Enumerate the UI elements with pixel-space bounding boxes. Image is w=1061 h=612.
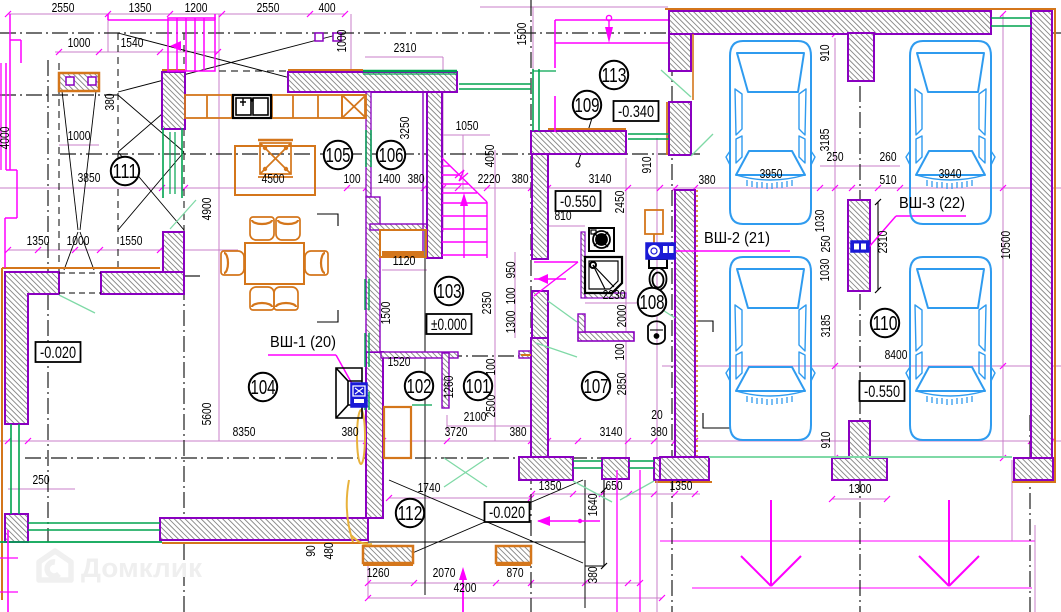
svg-text:104: 104 — [251, 377, 276, 399]
svg-text:950: 950 — [503, 261, 518, 278]
svg-text:1350: 1350 — [539, 478, 562, 493]
svg-text:109: 109 — [575, 95, 600, 117]
svg-text:910: 910 — [818, 431, 833, 448]
svg-text:±0.000: ±0.000 — [431, 315, 467, 334]
svg-text:1400: 1400 — [378, 171, 401, 186]
svg-text:1520: 1520 — [388, 354, 411, 369]
svg-text:1120: 1120 — [393, 253, 416, 268]
svg-text:1500: 1500 — [514, 23, 529, 46]
svg-text:101: 101 — [466, 376, 491, 398]
svg-text:380: 380 — [585, 566, 600, 583]
svg-text:4200: 4200 — [454, 580, 477, 595]
svg-text:1030: 1030 — [812, 210, 827, 233]
svg-text:3940: 3940 — [939, 166, 962, 181]
svg-text:250: 250 — [818, 235, 833, 252]
svg-text:ВШ-1 (20): ВШ-1 (20) — [270, 334, 336, 351]
svg-text:1260: 1260 — [441, 376, 456, 399]
svg-text:10500: 10500 — [998, 231, 1013, 260]
svg-text:3140: 3140 — [589, 171, 612, 186]
svg-text:-0.340: -0.340 — [618, 102, 654, 121]
svg-text:1260: 1260 — [367, 565, 390, 580]
svg-text:ВШ-2 (21): ВШ-2 (21) — [704, 230, 770, 247]
svg-text:103: 103 — [437, 281, 462, 303]
svg-text:Домклик: Домклик — [81, 553, 203, 583]
svg-text:-0.020: -0.020 — [489, 503, 525, 522]
svg-text:3850: 3850 — [78, 170, 101, 185]
svg-text:3140: 3140 — [600, 424, 623, 439]
svg-text:1350: 1350 — [670, 478, 693, 493]
svg-text:4000: 4000 — [0, 127, 12, 150]
svg-text:111: 111 — [113, 161, 138, 183]
svg-text:100: 100 — [612, 343, 627, 360]
svg-text:1050: 1050 — [456, 118, 479, 133]
svg-text:480: 480 — [321, 542, 336, 559]
svg-text:1300: 1300 — [849, 481, 872, 496]
svg-text:105: 105 — [326, 145, 351, 167]
svg-text:1200: 1200 — [185, 0, 208, 15]
svg-text:2550: 2550 — [52, 0, 75, 15]
svg-text:1030: 1030 — [817, 259, 832, 282]
svg-text:113: 113 — [602, 65, 627, 87]
svg-text:2450: 2450 — [612, 191, 627, 214]
svg-text:90: 90 — [303, 545, 318, 556]
svg-text:108: 108 — [640, 292, 665, 314]
svg-text:ВШ-3 (22): ВШ-3 (22) — [899, 195, 965, 212]
svg-text:-0.550: -0.550 — [864, 382, 900, 401]
svg-text:-0.550: -0.550 — [560, 192, 596, 211]
svg-text:3720: 3720 — [445, 424, 468, 439]
svg-text:3185: 3185 — [818, 315, 833, 338]
svg-text:2850: 2850 — [614, 373, 629, 396]
svg-text:1500: 1500 — [378, 302, 393, 325]
svg-text:380: 380 — [102, 93, 117, 110]
svg-text:8400: 8400 — [885, 347, 908, 362]
svg-text:1000: 1000 — [68, 35, 91, 50]
svg-text:2310: 2310 — [875, 231, 890, 254]
svg-text:107: 107 — [584, 376, 609, 398]
svg-text:5600: 5600 — [199, 403, 214, 426]
svg-text:2070: 2070 — [433, 565, 456, 580]
svg-text:8350: 8350 — [233, 424, 256, 439]
svg-text:1550: 1550 — [120, 233, 143, 248]
svg-text:400: 400 — [318, 0, 335, 15]
svg-text:1300: 1300 — [503, 311, 518, 334]
svg-text:380: 380 — [650, 424, 667, 439]
svg-text:380: 380 — [698, 172, 715, 187]
svg-text:250: 250 — [32, 472, 49, 487]
svg-text:870: 870 — [506, 565, 523, 580]
svg-text:910: 910 — [639, 156, 654, 173]
svg-text:1540: 1540 — [121, 35, 144, 50]
svg-text:2350: 2350 — [479, 292, 494, 315]
svg-text:1350: 1350 — [129, 0, 152, 15]
svg-text:-0.020: -0.020 — [40, 343, 76, 362]
svg-text:2230: 2230 — [603, 287, 626, 302]
svg-text:1000: 1000 — [334, 30, 349, 53]
svg-text:260: 260 — [879, 149, 896, 164]
svg-text:3185: 3185 — [817, 129, 832, 152]
svg-text:380: 380 — [511, 171, 528, 186]
svg-text:650: 650 — [605, 478, 622, 493]
svg-text:112: 112 — [398, 503, 423, 525]
svg-text:110: 110 — [873, 313, 898, 335]
svg-text:2000: 2000 — [614, 305, 629, 328]
svg-text:510: 510 — [879, 172, 896, 187]
svg-text:20: 20 — [651, 407, 662, 422]
svg-text:100: 100 — [503, 287, 518, 304]
svg-text:106: 106 — [379, 145, 404, 167]
svg-text:1350: 1350 — [27, 233, 50, 248]
svg-text:2550: 2550 — [257, 0, 280, 15]
svg-text:380: 380 — [341, 424, 358, 439]
svg-text:380: 380 — [407, 171, 424, 186]
svg-text:1000: 1000 — [67, 233, 90, 248]
svg-text:2220: 2220 — [478, 171, 501, 186]
svg-text:102: 102 — [407, 376, 432, 398]
svg-text:1740: 1740 — [418, 480, 441, 495]
svg-text:1000: 1000 — [68, 128, 91, 143]
svg-text:4500: 4500 — [262, 171, 285, 186]
svg-text:2310: 2310 — [394, 40, 417, 55]
svg-text:4050: 4050 — [482, 145, 497, 168]
svg-text:910: 910 — [817, 44, 832, 61]
svg-text:3250: 3250 — [397, 117, 412, 140]
svg-text:380: 380 — [509, 424, 526, 439]
svg-text:1640: 1640 — [585, 494, 600, 517]
svg-text:3950: 3950 — [760, 166, 783, 181]
svg-text:100: 100 — [343, 171, 360, 186]
svg-text:4900: 4900 — [199, 198, 214, 221]
